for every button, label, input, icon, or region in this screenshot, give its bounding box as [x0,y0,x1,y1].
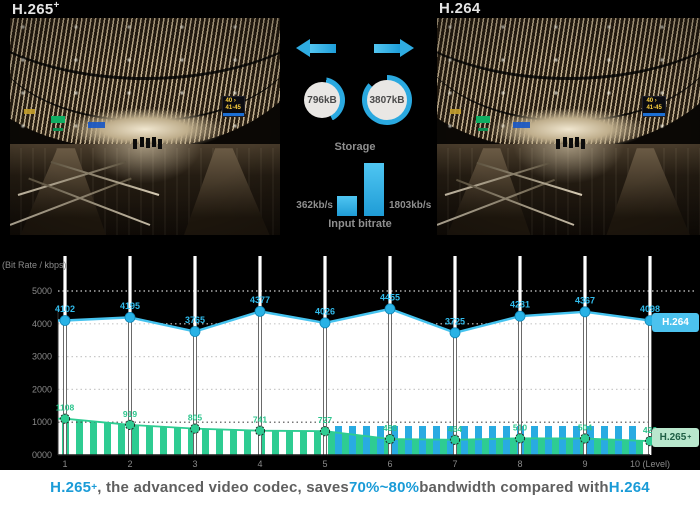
svg-text:2: 2 [127,459,132,469]
svg-text:805: 805 [188,413,202,423]
h264-point [385,304,395,314]
h265plus-photo: 40 › 41-45 [10,18,280,235]
h264-point [320,318,330,328]
svg-text:4455: 4455 [380,292,400,302]
left-arrow-head [296,39,310,57]
bitrate-chart-canvas: 1108919805741727488464510504423410241953… [0,250,700,470]
h265plus-storage-donut: 796kB [299,77,345,123]
h264-bitrate-bar [364,163,384,216]
y-tick-labels: 500040003000200010000000 [32,286,52,460]
h265plus-point [190,424,199,433]
svg-text:8: 8 [517,459,522,469]
svg-text:4000: 4000 [32,319,52,329]
h264-storage-donut: 3807kB [362,75,412,125]
svg-text:1108: 1108 [56,403,75,413]
h265plus-point [515,434,524,443]
svg-text:510: 510 [513,422,527,432]
svg-text:6: 6 [387,459,392,469]
h264-bitrate-value: 1803kb/s [389,200,431,211]
svg-text:5: 5 [322,459,327,469]
y-axis-title: (Bit Rate / kbps) [2,260,67,270]
svg-text:4377: 4377 [250,295,270,305]
svg-text:3765: 3765 [185,315,205,325]
left-arrow-icon [296,40,336,57]
h265plus-bitrate-bar [337,196,357,216]
x-tick-labels: 12345678910 (Level) [62,459,670,469]
h265plus-point [255,426,264,435]
svg-text:4231: 4231 [510,300,530,310]
caption-part: , the advanced video codec, saves [97,479,349,496]
svg-text:4367: 4367 [575,295,595,305]
svg-text:1000: 1000 [32,417,52,427]
svg-text:7: 7 [452,459,457,469]
bitrate-chart: 1108919805741727488464510504423410241953… [0,250,700,470]
svg-text:1: 1 [62,459,67,469]
svg-text:4026: 4026 [315,306,335,316]
h264-photo: 40 › 41-45 [437,18,700,235]
input-bitrate-label: Input bitrate [305,218,415,230]
caption-part: 70%~80% [349,479,419,496]
svg-text:504: 504 [578,423,592,433]
svg-text:5000: 5000 [32,286,52,296]
h265plus-point [320,427,329,436]
caption-part: H.265 [50,479,91,496]
vignette [437,18,700,235]
svg-text:3725: 3725 [445,316,465,326]
h264-point [60,316,70,326]
caption-part: H.264 [609,479,650,496]
h265plus-panel-title: H.265+ [12,0,60,18]
right-arrow-icon [374,40,414,57]
h265plus-point [125,420,134,429]
caption-part: bandwidth compared with [419,479,609,496]
left-arrow-shaft [310,44,336,53]
svg-text:741: 741 [253,415,267,425]
h264-panel-title: H.264 [439,0,481,17]
svg-text:488: 488 [383,423,397,433]
svg-text:3000: 3000 [32,352,52,362]
svg-text:3: 3 [192,459,197,469]
h264-storage-value: 3807kB [367,80,407,120]
h265plus-point [385,434,394,443]
svg-text:919: 919 [123,409,137,419]
svg-text:0000: 0000 [32,450,52,460]
h265plus-bitrate-value: 362kb/s [284,200,333,211]
right-arrow-shaft [374,44,400,53]
svg-text:464: 464 [448,424,462,434]
svg-text:4102: 4102 [55,304,75,314]
h264-point [125,312,135,322]
storage-label: Storage [310,141,400,153]
h264-point [580,307,590,317]
legend-chip-h265plus: H.265+ [652,428,699,447]
h265plus-storage-value: 796kB [304,82,340,118]
legend-chip-h264: H.264 [652,313,699,332]
caption: H.265+, the advanced video codec, saves … [0,470,700,505]
h265plus-point [60,414,69,423]
right-arrow-head [400,39,414,57]
h265plus-point [450,435,459,444]
svg-text:10 (Level): 10 (Level) [630,459,670,469]
h264-point [255,306,265,316]
h264-point [450,328,460,338]
svg-text:727: 727 [318,415,332,425]
h264-point [190,327,200,337]
svg-text:2000: 2000 [32,384,52,394]
h264-point [515,311,525,321]
svg-text:4: 4 [257,459,262,469]
svg-text:9: 9 [582,459,587,469]
vignette [10,18,280,235]
h265plus-point [580,434,589,443]
svg-text:4195: 4195 [120,301,140,311]
